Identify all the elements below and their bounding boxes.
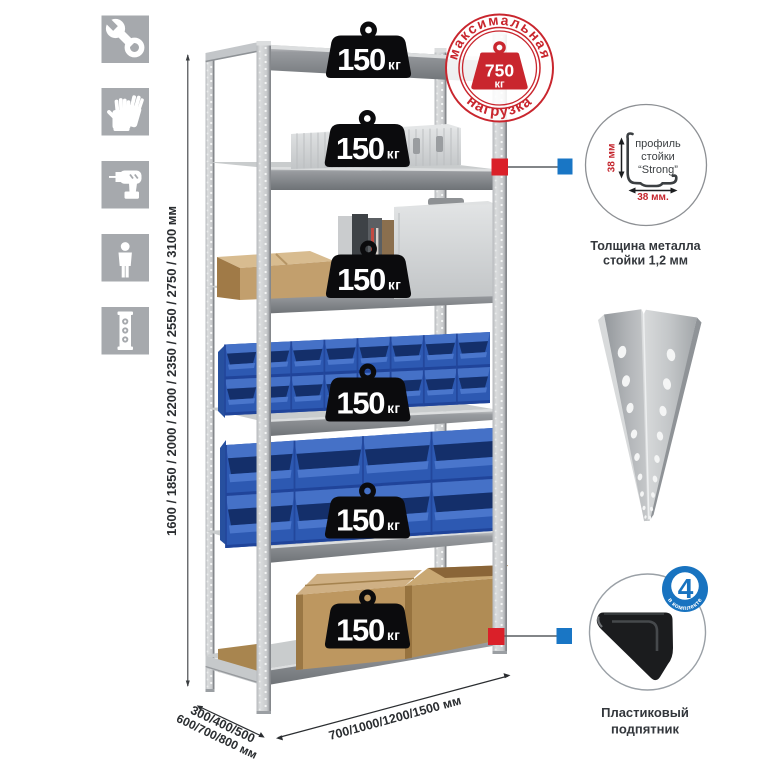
svg-text:кг: кг <box>387 147 400 162</box>
svg-text:кг: кг <box>387 518 400 533</box>
svg-text:подпятник: подпятник <box>611 722 680 737</box>
svg-text:стойки 1,2 мм: стойки 1,2 мм <box>603 254 688 268</box>
svg-text:150: 150 <box>336 613 384 648</box>
svg-text:кг: кг <box>387 628 400 643</box>
svg-text:1600 / 1850 / 2000 / 2200 / 23: 1600 / 1850 / 2000 / 2200 / 2350 / 2550 … <box>164 206 179 536</box>
svg-text:кг: кг <box>494 79 505 91</box>
svg-text:750: 750 <box>485 61 514 81</box>
svg-text:150: 150 <box>336 386 384 421</box>
svg-text:150: 150 <box>336 131 384 166</box>
svg-text:стойки: стойки <box>641 151 675 163</box>
svg-text:150: 150 <box>336 503 384 538</box>
svg-text:Пластиковый: Пластиковый <box>601 705 689 720</box>
svg-text:“Strong”: “Strong” <box>638 164 678 176</box>
svg-text:кг: кг <box>388 58 401 73</box>
svg-text:кг: кг <box>388 278 401 293</box>
svg-text:Толщина металла: Толщина металла <box>590 239 701 253</box>
svg-text:700/1000/1200/1500 мм: 700/1000/1200/1500 мм <box>327 693 463 743</box>
svg-text:38 мм: 38 мм <box>607 144 618 173</box>
svg-text:150: 150 <box>337 262 385 297</box>
svg-text:кг: кг <box>387 401 400 416</box>
svg-text:38 мм.: 38 мм. <box>637 192 669 203</box>
svg-text:150: 150 <box>337 42 385 77</box>
svg-text:профиль: профиль <box>635 138 681 150</box>
